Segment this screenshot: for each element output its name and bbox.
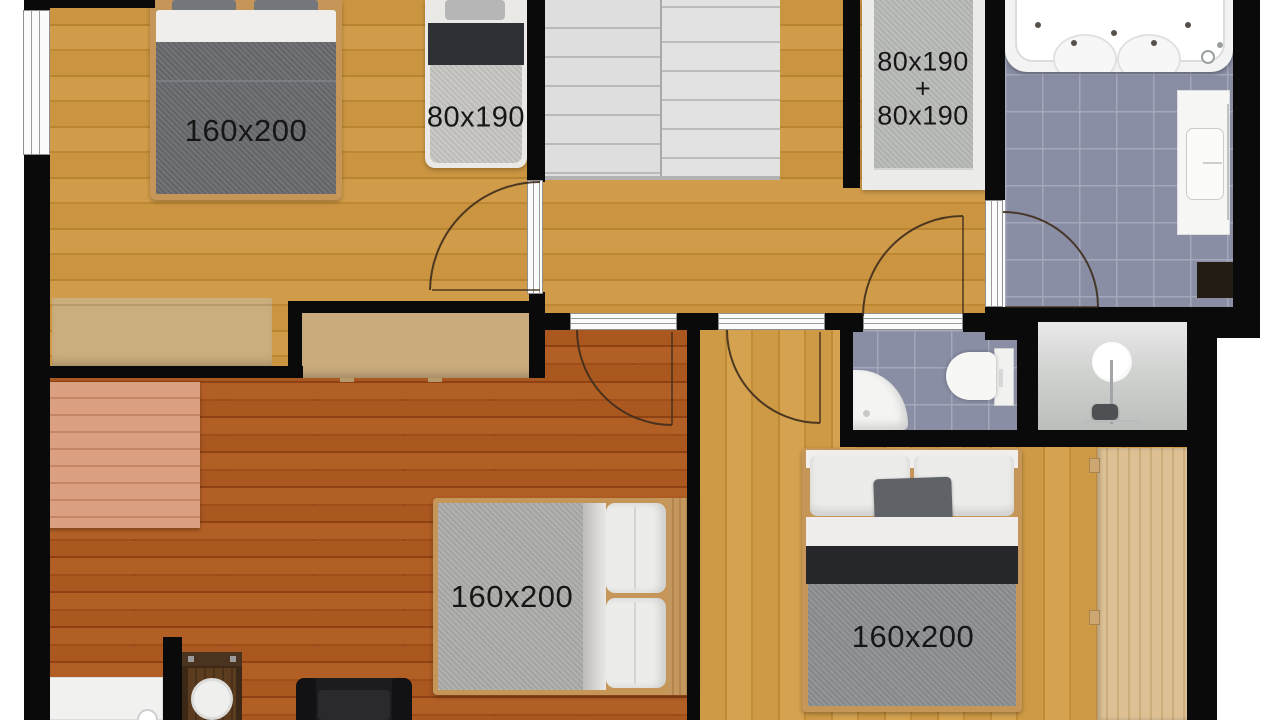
wall [1233,0,1260,307]
bathtub-faucet [1217,42,1223,48]
table [48,382,200,528]
wall-hung-toilet [946,348,1014,406]
staircase-right-flight [661,0,780,180]
jet [1151,40,1157,46]
living-room-entry-floor [545,330,700,370]
jet [1111,30,1117,36]
pillow [445,0,505,20]
counter [45,677,163,720]
hinge [188,656,194,662]
wall [1187,338,1217,720]
jacuzzi-bathtub [1005,0,1233,72]
wall [687,313,700,720]
pillow [606,503,666,593]
dresser-foot [340,378,354,382]
sink-drain [863,410,870,417]
jet [1185,22,1191,28]
bed-size-label-bottom-right: 160x200 [852,619,974,655]
door-opening-bedroom-top-left [527,180,543,294]
wardrobe-handle [1089,610,1100,625]
wall [288,301,545,313]
door-opening-living-room [570,313,677,330]
wc-toilet-unit [182,652,242,720]
wall [288,301,302,378]
bed-blanket [806,546,1018,584]
bed-size-label-top-left-double: 160x200 [185,113,307,149]
staircase-bottom-edge [543,176,780,180]
wc-toilet-bowl [191,678,233,720]
window-bedroom-top-left [23,10,50,155]
wall [50,0,155,8]
shower-rail-leg [1084,420,1086,427]
vanity-sink-divider [1203,162,1222,164]
bed-sheet [806,517,1018,546]
floor-plan: 160x200 80x190 80x190 + 80x190 160x200 1… [0,0,1280,720]
double-bed-bottom-right [802,448,1022,712]
wall [985,307,1005,340]
wall [545,313,570,330]
wall [840,313,853,447]
bed-sheet [156,10,336,44]
toilet-bowl [946,352,996,400]
dresser-living-room [300,313,533,378]
door-opening-toilet-room [863,313,963,330]
staircase [543,0,780,180]
vanity-handle [1227,104,1229,220]
hinge [230,656,236,662]
wardrobe-handle [1089,458,1100,473]
bathroom-vanity [1177,90,1230,235]
wall [1187,307,1260,338]
shower-stool [1092,404,1118,420]
dresser-edge [52,304,272,306]
bed-blanket [428,23,524,65]
dresser-bedroom-top-left [52,298,272,366]
blanket-seam [156,80,336,82]
vanity-sink [1186,128,1224,200]
wall [1038,307,1187,322]
bathtub-drain [1201,50,1215,64]
bed-sheet-fold [583,503,606,690]
toilet-flush-button [999,369,1003,387]
pillow-crease [634,602,636,684]
bath-mat [1197,262,1233,298]
wall [853,313,863,332]
pillow [606,598,666,688]
wall [45,366,303,378]
counter-sink [137,709,158,720]
shower-rail-leg [1138,420,1140,427]
door-opening-bathroom [985,200,1003,307]
double-bed-top-left [150,0,342,200]
armchair-arm [392,678,412,720]
armchair [296,678,412,720]
wall [24,0,50,10]
bed-size-label-living-room: 160x200 [451,579,573,615]
door-opening-bedroom-bottom-right [718,313,825,330]
wc-cistern [182,652,242,666]
staircase-left-flight [543,0,661,180]
staircase-divider [660,0,662,180]
armchair-seat [318,690,390,720]
wall [985,0,1005,200]
bed-size-label-hall-bunk-bottom: 80x190 [877,101,969,132]
wall [24,155,50,720]
wall [1017,313,1038,447]
jet [1071,40,1077,46]
toilet-tank [994,348,1014,406]
wardrobe [1097,448,1187,720]
single-bed-top-left [425,0,527,168]
armchair-arm [296,678,316,720]
wall [843,0,860,188]
bunk-bed-foot-edge [874,168,973,170]
dresser-foot [428,378,442,382]
pillow-crease [634,507,636,589]
jet [1035,22,1041,28]
wall [163,637,182,720]
wall [527,0,545,182]
shower-rail [1084,420,1140,422]
bed-size-label-top-left-single: 80x190 [427,102,525,135]
